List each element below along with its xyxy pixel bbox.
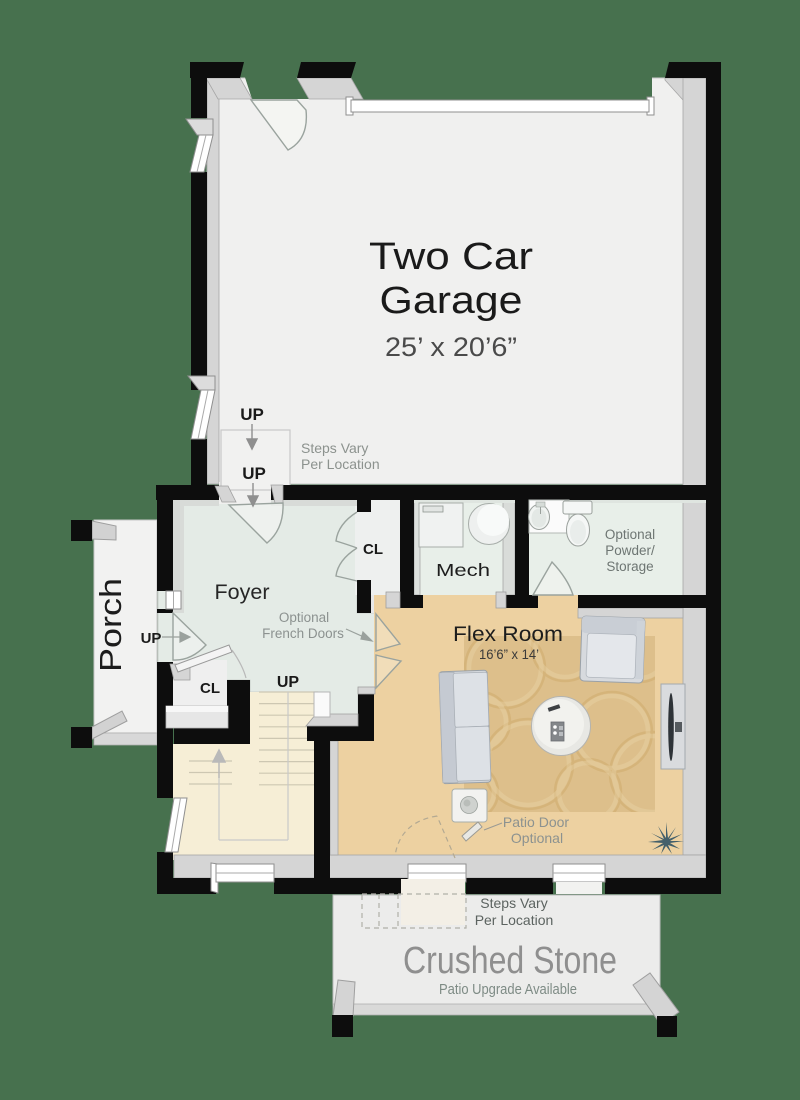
svg-text:UP: UP (277, 674, 300, 691)
svg-text:UP: UP (242, 464, 266, 483)
svg-text:Foyer: Foyer (215, 580, 270, 604)
svg-text:Optional: Optional (279, 610, 329, 625)
svg-text:Optional: Optional (511, 830, 563, 846)
svg-text:Per Location: Per Location (301, 456, 380, 472)
svg-text:16’6” x 14’: 16’6” x 14’ (479, 647, 539, 662)
svg-text:Porch: Porch (93, 578, 128, 672)
svg-text:UP: UP (240, 405, 264, 424)
svg-text:CL: CL (363, 541, 383, 558)
svg-text:Powder/: Powder/ (605, 543, 655, 558)
svg-text:25’ x 20’6”: 25’ x 20’6” (385, 332, 517, 362)
svg-text:Crushed Stone: Crushed Stone (403, 940, 617, 982)
svg-text:UP: UP (141, 630, 162, 647)
svg-text:Flex Room: Flex Room (453, 622, 563, 646)
svg-text:Mech: Mech (436, 560, 490, 580)
svg-text:Patio Door: Patio Door (503, 814, 569, 830)
svg-text:Per Location: Per Location (475, 912, 554, 928)
svg-text:Steps Vary: Steps Vary (301, 440, 368, 456)
svg-text:Garage: Garage (380, 280, 523, 322)
svg-text:Optional: Optional (605, 527, 655, 542)
svg-text:Two Car: Two Car (369, 236, 533, 278)
svg-text:Patio Upgrade Available: Patio Upgrade Available (439, 982, 577, 998)
svg-text:French Doors: French Doors (262, 626, 344, 641)
svg-text:CL: CL (200, 680, 220, 697)
svg-text:Storage: Storage (606, 559, 653, 574)
svg-text:Steps Vary: Steps Vary (480, 895, 547, 911)
